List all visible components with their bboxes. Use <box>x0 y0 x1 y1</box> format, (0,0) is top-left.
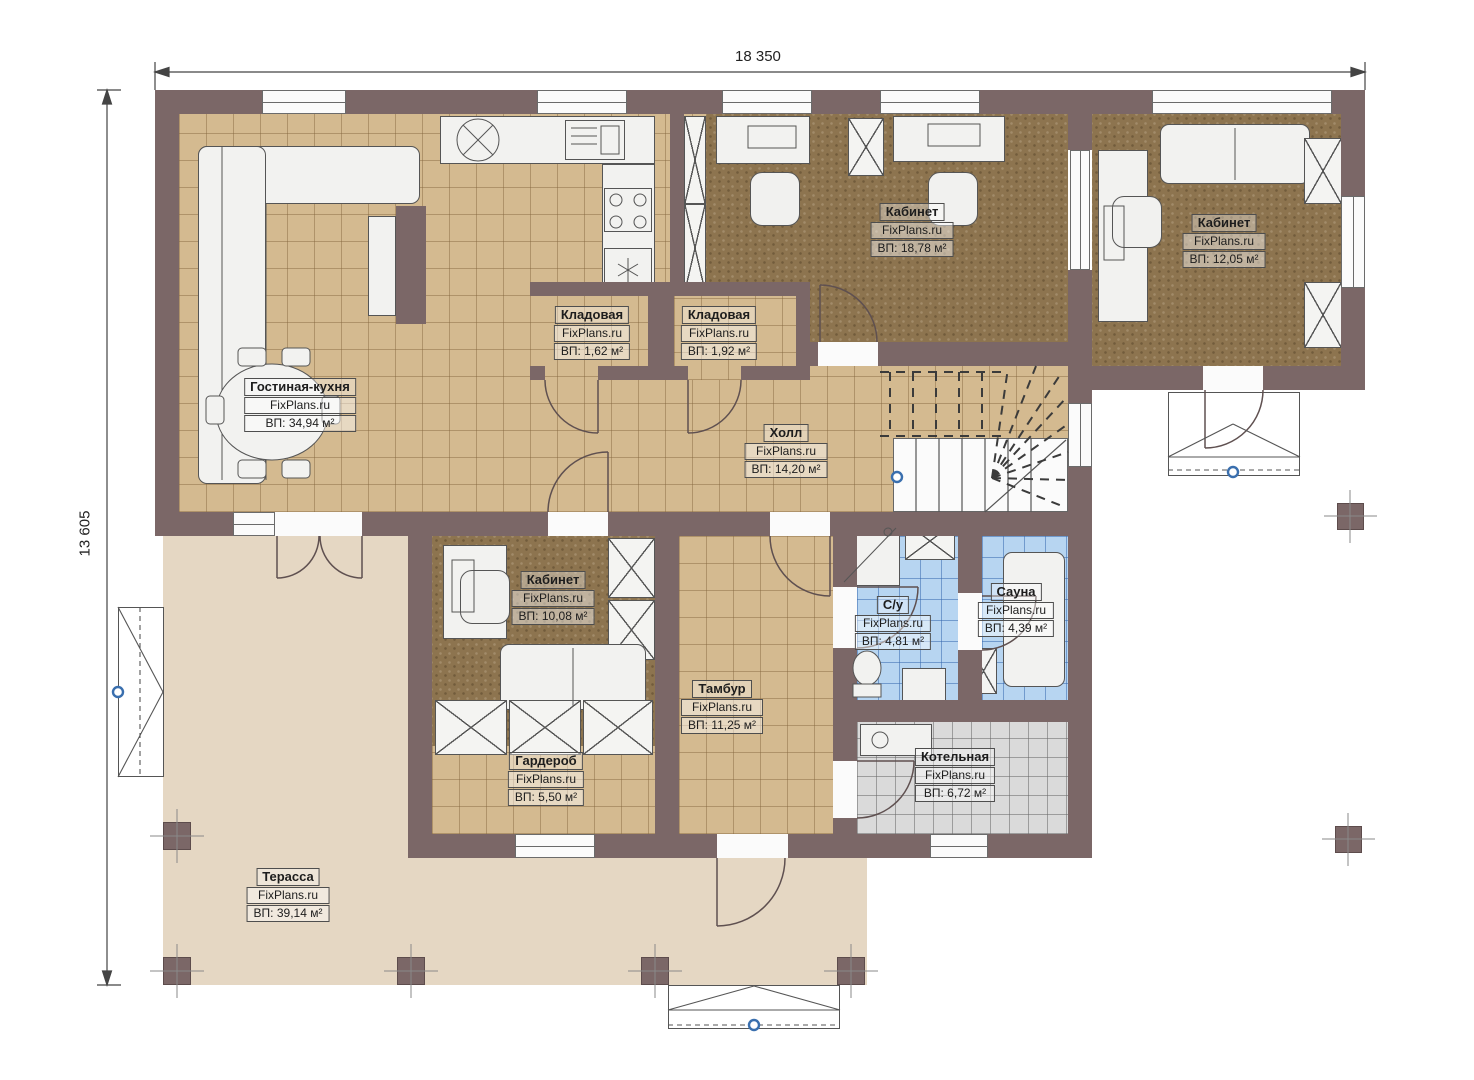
stair-upper-flight-dashed <box>880 366 1068 506</box>
room-label-terrace: Терасса FixPlans.ru ВП: 39,14 м² <box>247 868 330 922</box>
room-name: Сауна <box>990 583 1041 601</box>
room-area: ВП: 10,08 м² <box>512 608 595 625</box>
room-label-sauna: Сауна FixPlans.ru ВП: 4,39 м² <box>978 583 1054 637</box>
furniture-details <box>206 119 1235 748</box>
room-area: ВП: 12,05 м² <box>1183 251 1266 268</box>
room-area: ВП: 18,78 м² <box>871 240 954 257</box>
room-label-wardrobe: Гардероб FixPlans.ru ВП: 5,50 м² <box>508 752 584 806</box>
plan-annotations <box>0 0 1474 1080</box>
room-area: ВП: 4,39 м² <box>978 620 1054 637</box>
room-name: Гардероб <box>509 752 582 770</box>
room-label-tambur: Тамбур FixPlans.ru ВП: 11,25 м² <box>681 680 763 734</box>
room-label-hall: Холл FixPlans.ru ВП: 14,20 м² <box>745 424 828 478</box>
room-label-storage-2: Кладовая FixPlans.ru ВП: 1,92 м² <box>681 306 757 360</box>
room-name: Терасса <box>256 868 320 886</box>
room-watermark: FixPlans.ru <box>681 699 763 716</box>
room-area: ВП: 4,81 м² <box>855 633 931 650</box>
floor-plan: 18 350 13 605 Гостиная-кухня FixPlans.ru… <box>0 0 1474 1080</box>
room-area: ВП: 11,25 м² <box>681 717 763 734</box>
room-watermark: FixPlans.ru <box>1183 233 1266 250</box>
dimension-width-label: 18 350 <box>735 48 781 65</box>
room-label-boiler: Котельная FixPlans.ru ВП: 6,72 м² <box>915 748 995 802</box>
room-label-cabinet-right: Кабинет FixPlans.ru ВП: 12,05 м² <box>1183 214 1266 268</box>
room-name: Холл <box>764 424 809 442</box>
room-area: ВП: 39,14 м² <box>247 905 330 922</box>
section-markers <box>113 467 1238 1030</box>
room-watermark: FixPlans.ru <box>244 397 356 414</box>
room-watermark: FixPlans.ru <box>855 615 931 632</box>
room-name: Кабинет <box>880 203 945 221</box>
room-watermark: FixPlans.ru <box>978 602 1054 619</box>
room-label-cabinet-top: Кабинет FixPlans.ru ВП: 18,78 м² <box>871 203 954 257</box>
room-area: ВП: 1,92 м² <box>681 343 757 360</box>
room-name: Кладовая <box>555 306 629 324</box>
room-name: Кабинет <box>521 571 586 589</box>
dimension-lines <box>97 62 1365 985</box>
room-label-cabinet-mid: Кабинет FixPlans.ru ВП: 10,08 м² <box>512 571 595 625</box>
room-name: Кабинет <box>1192 214 1257 232</box>
room-name: Тамбур <box>692 680 751 698</box>
room-area: ВП: 6,72 м² <box>915 785 995 802</box>
room-area: ВП: 5,50 м² <box>508 789 584 806</box>
room-label-bathroom: С/у FixPlans.ru ВП: 4,81 м² <box>855 596 931 650</box>
room-area: ВП: 14,20 м² <box>745 461 828 478</box>
dimension-height-label: 13 605 <box>76 511 93 557</box>
room-name: С/у <box>877 596 909 614</box>
room-watermark: FixPlans.ru <box>512 590 595 607</box>
room-watermark: FixPlans.ru <box>247 887 330 904</box>
room-watermark: FixPlans.ru <box>681 325 757 342</box>
room-area: ВП: 1,62 м² <box>554 343 630 360</box>
room-watermark: FixPlans.ru <box>915 767 995 784</box>
door-arcs <box>277 285 1263 926</box>
room-watermark: FixPlans.ru <box>554 325 630 342</box>
room-area: ВП: 34,94 м² <box>244 415 356 432</box>
room-label-living-kitchen: Гостиная-кухня FixPlans.ru ВП: 34,94 м² <box>244 378 356 432</box>
room-name: Кладовая <box>682 306 756 324</box>
room-name: Гостиная-кухня <box>244 378 356 396</box>
column-ticks <box>150 490 1377 998</box>
stair-treads <box>916 438 1066 512</box>
room-name: Котельная <box>915 748 995 766</box>
room-watermark: FixPlans.ru <box>508 771 584 788</box>
room-watermark: FixPlans.ru <box>871 222 954 239</box>
room-watermark: FixPlans.ru <box>745 443 828 460</box>
room-label-storage-1: Кладовая FixPlans.ru ВП: 1,62 м² <box>554 306 630 360</box>
